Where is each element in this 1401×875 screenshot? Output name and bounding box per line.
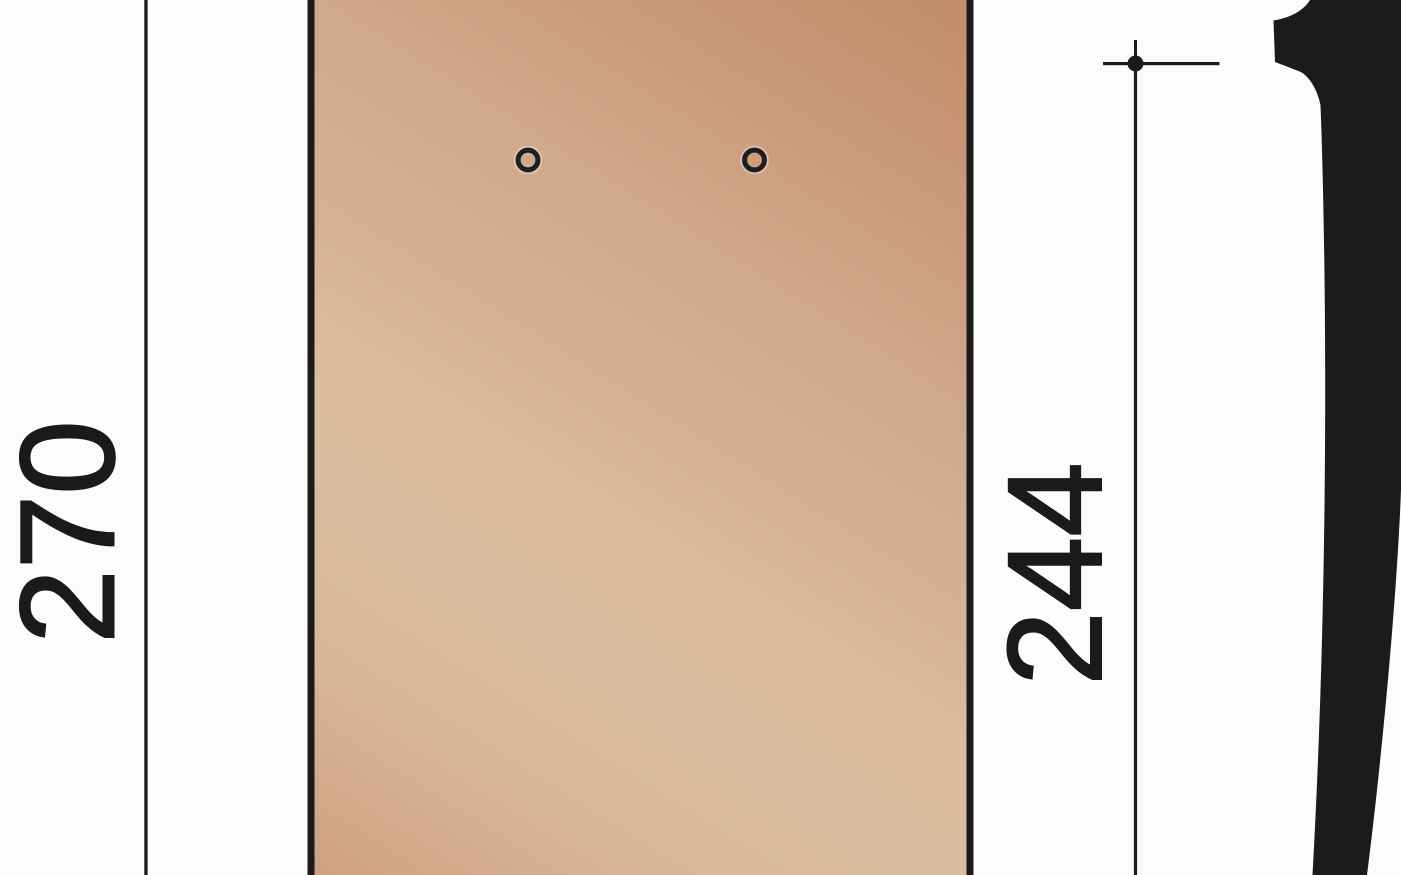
svg-text:270: 270 [0,420,143,644]
svg-text:244: 244 [981,462,1130,686]
